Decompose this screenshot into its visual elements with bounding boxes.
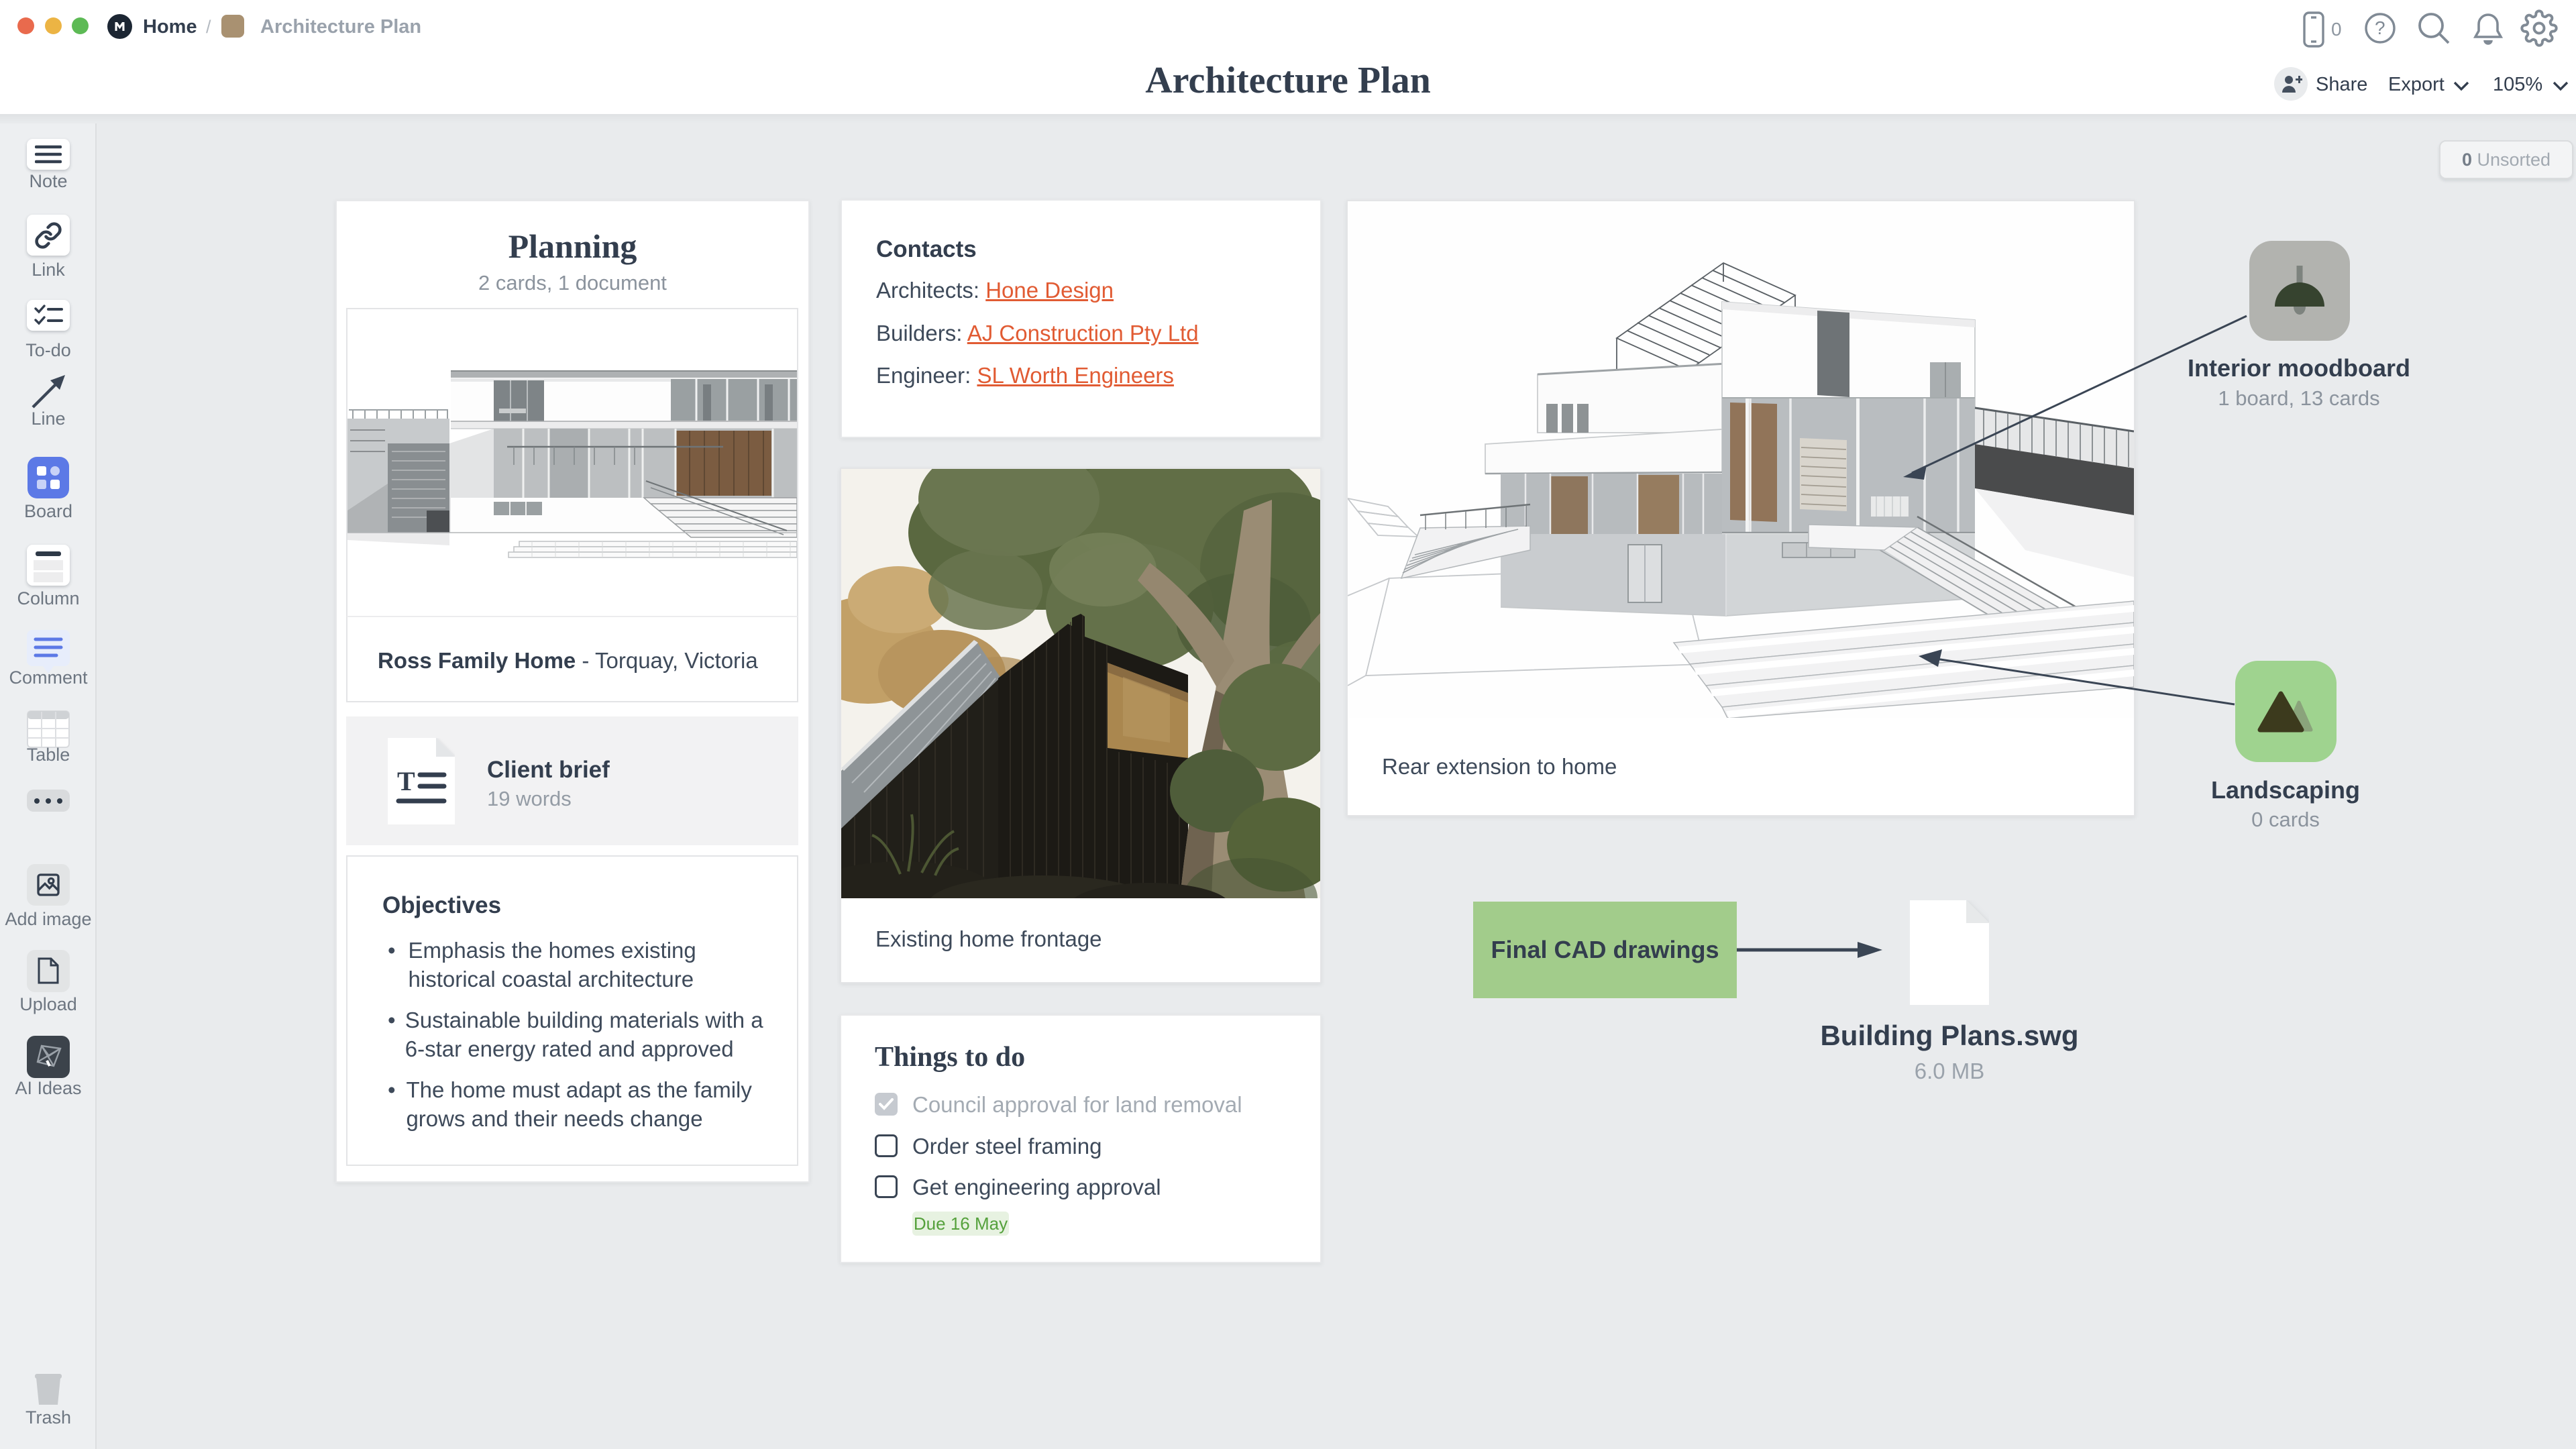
svg-text:T: T [397,766,415,796]
svg-text:0: 0 [2331,19,2342,40]
svg-text:?: ? [2375,17,2385,38]
